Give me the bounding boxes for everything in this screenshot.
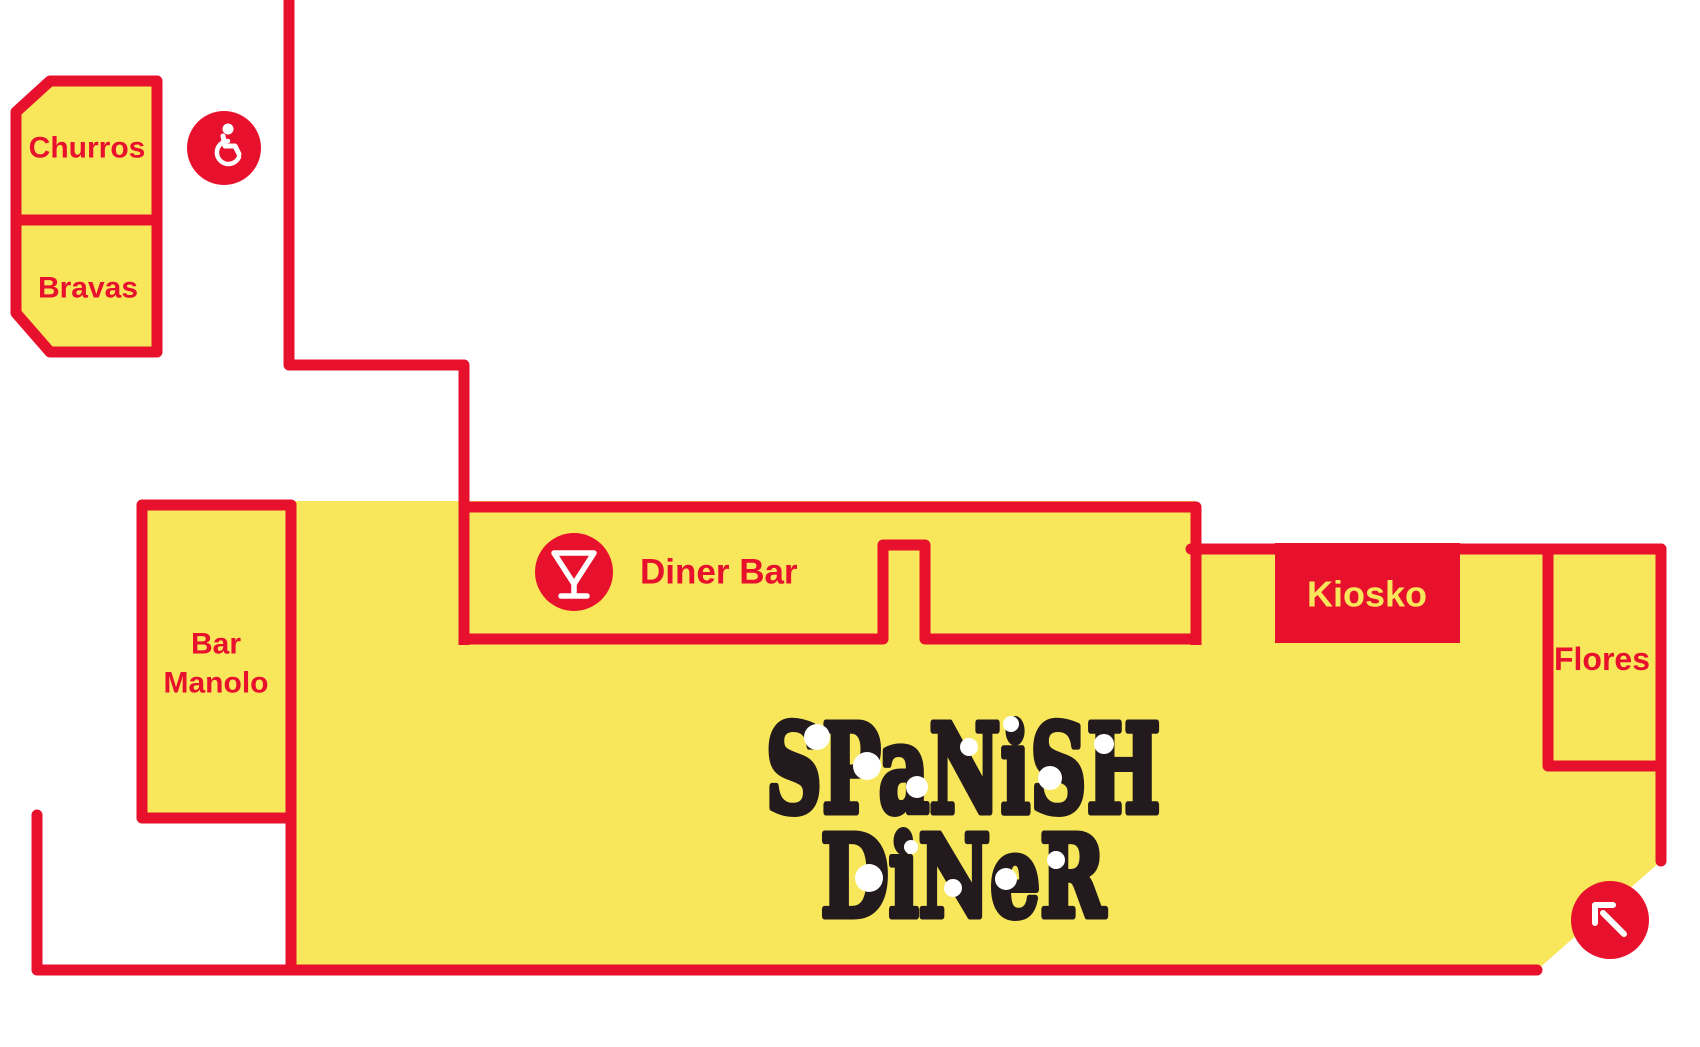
churros-label[interactable]: Churros — [29, 132, 146, 165]
logo-dot — [944, 879, 962, 897]
bravas-label[interactable]: Bravas — [38, 272, 138, 305]
bar-manolo-outline[interactable] — [142, 505, 291, 818]
logo-dot — [995, 868, 1017, 890]
flores-label: Flores — [1554, 641, 1650, 677]
wheelchair-icon-head — [223, 124, 234, 135]
logo-dot — [1038, 766, 1062, 790]
bar-manolo-label-line1: Bar — [191, 628, 241, 661]
logo-dot — [906, 776, 928, 798]
logo-dot — [1047, 851, 1065, 869]
logo-dot — [1094, 734, 1114, 754]
churros-bravas-building: Churros Bravas — [16, 81, 157, 352]
spanish-diner-map: Churros Bravas Bar Manolo Kiosko Flores … — [0, 0, 1700, 1047]
spanish-diner-logo: SPaNiSH DiNeR — [766, 699, 1161, 943]
logo-dot — [960, 738, 978, 756]
logo-dot — [853, 752, 881, 780]
logo-dot — [1003, 716, 1019, 732]
bar-manolo-label-line2: Manolo — [164, 667, 269, 700]
logo-dot — [804, 724, 830, 750]
diner-bar-label: Diner Bar — [640, 553, 798, 592]
flores-room[interactable]: Flores — [1548, 549, 1661, 766]
cocktail-icon[interactable] — [535, 533, 613, 611]
logo-dot — [904, 840, 918, 854]
accessibility-marker[interactable] — [187, 111, 261, 185]
logo-dot — [855, 864, 883, 892]
exit-arrow-marker[interactable] — [1571, 881, 1649, 959]
kiosko-label: Kiosko — [1307, 574, 1427, 615]
bar-manolo-room[interactable]: Bar Manolo — [142, 505, 291, 818]
kiosko-room[interactable]: Kiosko — [1275, 543, 1460, 643]
